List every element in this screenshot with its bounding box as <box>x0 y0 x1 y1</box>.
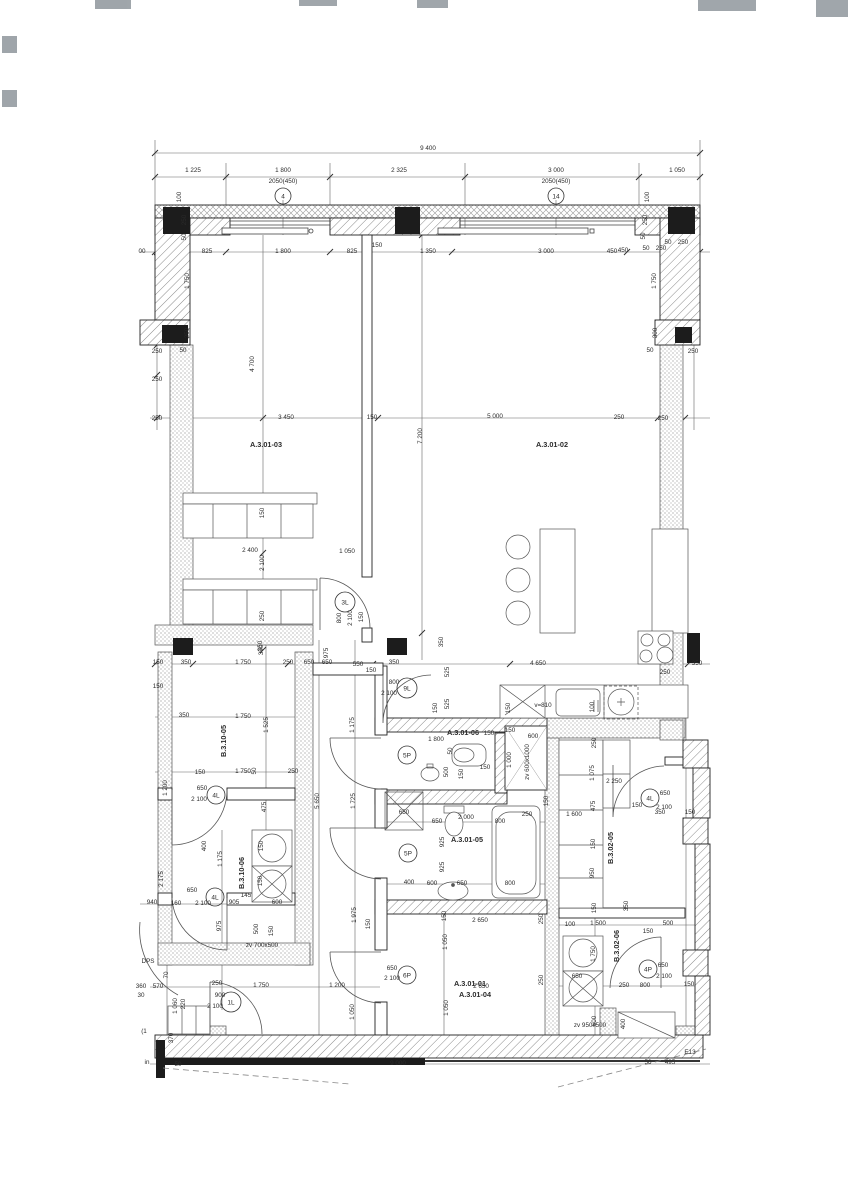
dim-label: 150 <box>358 611 365 622</box>
dim-label: 2 100 <box>656 973 672 980</box>
dim-label: 150 <box>372 242 383 249</box>
dim-label: 500 <box>253 923 260 934</box>
door-tag: 9L <box>403 685 411 692</box>
dim-label: 100 <box>644 191 651 202</box>
dim-label: 925 <box>439 836 446 847</box>
dim-label: 145 <box>241 892 252 899</box>
shaft-label: zv 600x1000 <box>524 744 531 780</box>
dim-label: 1 175 <box>217 851 224 867</box>
dim-label: 360 <box>136 983 147 990</box>
dim-label: 250 <box>538 913 545 924</box>
window-tag: 4 <box>281 193 285 200</box>
dim-label: 650 <box>399 809 410 816</box>
dim-label: 1 750 <box>235 768 251 775</box>
dim-label: 3 450 <box>278 414 294 421</box>
dim-label: 5 000 <box>487 413 503 420</box>
dim-label: 150 <box>432 702 439 713</box>
dim-label: 3 000 <box>538 248 554 255</box>
dim-label: 825 <box>202 248 213 255</box>
dim-label: 4 650 <box>530 660 546 667</box>
dim-label: 220 <box>180 998 187 1009</box>
dim-label: 150 <box>268 925 275 936</box>
dim-label: 350 <box>257 640 264 651</box>
dim-label: 250 <box>538 974 545 985</box>
dim-label: 650 <box>197 785 208 792</box>
dim-label: 50 <box>644 1059 652 1066</box>
dim-label: 00 <box>138 248 146 255</box>
dim-label: 250 <box>152 415 163 422</box>
dim-label: 570 <box>153 983 164 990</box>
dim-label: 250 <box>591 737 598 748</box>
dim-label: 1 060 <box>172 998 179 1014</box>
dim-label: 800 <box>336 612 343 623</box>
dim-label: 400 <box>201 840 208 851</box>
dim-label: 800 <box>505 880 516 887</box>
dim-label: 250 <box>642 214 649 225</box>
dim-label: 1 600 <box>566 811 582 818</box>
dim-label: 4 700 <box>249 356 256 372</box>
chair <box>506 568 530 592</box>
dim-label: 400 <box>404 879 415 886</box>
door-tag: 4L <box>211 894 219 901</box>
dim-label: 250 <box>212 980 223 987</box>
dim-label: 150 <box>505 702 512 713</box>
dim-label: 495 <box>665 1059 676 1066</box>
dim-label: 250 <box>614 414 625 421</box>
dim-label: 100 <box>589 701 596 712</box>
wardrobe <box>183 504 313 538</box>
door-tag: 4P <box>644 966 652 973</box>
dim-label: 2 400 <box>242 547 258 554</box>
dim-label: 150 <box>366 667 377 674</box>
room-label: A.3.01-05 <box>451 835 483 844</box>
wash-basin <box>421 767 439 781</box>
dim-label: 1 500 <box>590 920 606 927</box>
window-tag: 14 <box>552 193 560 200</box>
dim-label: 2 175 <box>158 871 165 887</box>
dim-label: 50 <box>664 239 672 246</box>
dim-label: 1 050 <box>669 167 685 174</box>
dim-label: 1 050 <box>443 1000 450 1016</box>
dim-label: 1 225 <box>185 167 201 174</box>
room-label: B.3.10-06 <box>237 857 246 889</box>
dim-label: 250 <box>658 415 669 422</box>
dim-label: 350 <box>655 809 666 816</box>
column <box>675 327 692 343</box>
shaft-label: zv 700x500 <box>246 942 279 949</box>
dim-label: 250 <box>283 659 294 666</box>
dim-label: 250 <box>522 811 533 818</box>
door-6P <box>330 952 381 1003</box>
dim-label: 70 <box>163 971 170 979</box>
dim-label: 150 <box>257 875 264 886</box>
dim-label: 50 <box>447 747 454 755</box>
dim-label: 1 750 <box>590 946 597 962</box>
wardrobe-shelf <box>183 493 317 504</box>
dim-label: 1 800 <box>275 248 291 255</box>
dim-label: 150 <box>484 730 495 737</box>
dim-label: 650 <box>457 880 468 887</box>
dim-label: 900 <box>215 992 226 999</box>
door-5P <box>330 828 381 879</box>
dim-label: 150 <box>259 507 266 518</box>
dim-label: 550 <box>353 661 364 668</box>
dim-label: 475 <box>261 801 268 812</box>
dim-label: 600 <box>272 899 283 906</box>
dim-label: 160 <box>171 900 182 907</box>
dim-label: 250 <box>660 669 671 676</box>
dim-label: 2050(450) <box>542 178 571 185</box>
room-label: A.3.01-03 <box>250 440 282 449</box>
chair <box>506 535 530 559</box>
dim-label: 3 000 <box>548 167 564 174</box>
floor-plan-page: architectural floor plan <box>0 0 848 1200</box>
door-tag: 4L <box>212 792 220 799</box>
dim-label: 250 <box>152 376 163 383</box>
room-label: A.3.01-06 <box>447 728 479 737</box>
dim-label: 1 750 <box>253 982 269 989</box>
dim-label: 150 <box>153 683 164 690</box>
dim-label: 150 <box>480 764 491 771</box>
dim-label: 150 <box>590 838 597 849</box>
dim-label: 5 650 <box>314 793 321 809</box>
dim-label: 150 <box>543 795 550 806</box>
closet <box>559 740 603 908</box>
dim-label: 2 325 <box>391 167 407 174</box>
door-5P <box>330 738 381 789</box>
dim-label: 150 <box>441 910 448 921</box>
dim-label: (1 <box>141 1028 147 1035</box>
plinth-band <box>163 1058 425 1065</box>
dim-label: 650 <box>658 962 669 969</box>
dim-label: 1 800 <box>275 167 291 174</box>
toilet <box>452 744 486 766</box>
dim-label: 100 <box>565 921 576 928</box>
door-tag: 3L <box>341 599 349 606</box>
dim-label: 650 <box>322 659 333 666</box>
dim-label: DPS <box>142 958 155 965</box>
window-1 <box>230 221 330 225</box>
dim-label: 150 <box>684 981 695 988</box>
dim-label: 1 975 <box>351 907 358 923</box>
dim-label: 650 <box>432 818 443 825</box>
dim-label: 650 <box>572 973 583 980</box>
dim-label: 350 <box>438 636 445 647</box>
dim-label: 800 <box>640 982 651 989</box>
dim-label: 150 <box>458 768 465 779</box>
dim-label: 350 <box>692 660 703 667</box>
shaft-label: v=810 <box>534 702 552 709</box>
room-label: B.3.02-05 <box>606 832 615 864</box>
dim-label: 50 <box>642 245 650 252</box>
dim-label: in <box>145 1059 150 1066</box>
dim-label: 7 200 <box>417 428 424 444</box>
column <box>387 638 407 655</box>
dim-label: 1 750 <box>235 713 251 720</box>
room-label: A.3.01-02 <box>536 440 568 449</box>
dim-label: 150 <box>258 840 265 851</box>
dim-label: 250 <box>184 327 191 338</box>
dim-label: 2 100 <box>347 610 354 626</box>
window-2 <box>460 221 635 225</box>
dim-label: 150 <box>685 809 696 816</box>
kitchen-tall-unit <box>652 529 688 633</box>
dim-label: 250 <box>619 982 630 989</box>
dim-label: 500 <box>443 766 450 777</box>
dim-label: 150 <box>367 414 378 421</box>
dim-label: 250 <box>181 214 188 225</box>
dim-label: 1 800 <box>428 736 444 743</box>
dim-label: 2 100 <box>191 796 207 803</box>
room-label: B.3.10-05 <box>219 725 228 757</box>
dim-label: 1 050 <box>349 1004 356 1020</box>
room-label: B.3.02-06 <box>612 930 621 962</box>
dim-label: 1 050 <box>442 934 449 950</box>
chair <box>506 601 530 625</box>
dim-label: 450 <box>618 247 629 254</box>
dim-label: 975 <box>216 920 223 931</box>
dim-label: 1 525 <box>263 717 270 733</box>
dim-label: 150 <box>632 802 643 809</box>
floor-plan-canvas: 9 4001 2251 8002050(450)2 3253 0002050(4… <box>0 0 848 1200</box>
dim-label: 940 <box>147 899 158 906</box>
dim-label: 350 <box>179 712 190 719</box>
dim-label: 1 075 <box>589 765 596 781</box>
dim-label: 2 650 <box>472 917 488 924</box>
dim-label: 1 350 <box>420 248 436 255</box>
column <box>687 633 700 663</box>
door-tag: 1L <box>227 999 235 1006</box>
dim-label: 1 750 <box>651 273 658 289</box>
dim-label: 2050(450) <box>269 178 298 185</box>
dim-label: 1 050 <box>339 548 355 555</box>
dim-label: 1 000 <box>506 752 513 768</box>
dim-label: 2 100 <box>259 555 266 571</box>
dim-label: 50 <box>646 347 654 354</box>
room-label: A.3.01-04 <box>459 990 492 999</box>
dim-label: 250 <box>678 239 689 246</box>
door-tag: 6P <box>403 972 411 979</box>
dim-label: 50 <box>174 1061 182 1068</box>
dim-label: 450 <box>607 248 618 255</box>
dim-label: 9 400 <box>420 145 436 152</box>
dim-label: 150 <box>505 727 516 734</box>
dim-label: 50 <box>640 232 647 240</box>
dim-label: 925 <box>439 861 446 872</box>
dim-label: 650 <box>187 887 198 894</box>
dim-label: 370 <box>168 1032 175 1043</box>
dim-label: 600 <box>427 880 438 887</box>
dim-label: 9 000 <box>390 1060 406 1067</box>
dim-label: 150 <box>643 928 654 935</box>
dim-label: 250 <box>259 610 266 621</box>
dim-label: 150 <box>365 918 372 929</box>
room-label: A.3.01-01 <box>454 979 486 988</box>
dim-label: 1 200 <box>329 982 345 989</box>
dim-label: 150 <box>153 659 164 666</box>
dim-label: 825 <box>347 248 358 255</box>
dim-label: E13 <box>684 1049 696 1056</box>
dim-label: 150 <box>591 902 598 913</box>
column <box>173 638 193 655</box>
dim-label: 150 <box>195 769 206 776</box>
dim-label: 250 <box>688 348 699 355</box>
dim-label: 800 <box>495 818 506 825</box>
dim-label: 100 <box>176 191 183 202</box>
wardrobe <box>183 590 313 624</box>
dim-label: 350 <box>181 659 192 666</box>
dim-label: 525 <box>444 698 451 709</box>
dim-label: 350 <box>623 900 630 911</box>
dim-label: 2 100 <box>381 690 397 697</box>
dim-label: 50 <box>181 233 188 241</box>
dim-label: 2 250 <box>606 778 622 785</box>
door-tag: 5P <box>404 850 412 857</box>
dim-label: 600 <box>528 733 539 740</box>
door-tag: 5P <box>403 752 411 759</box>
dim-label: 1 725 <box>350 793 357 809</box>
dim-label: 400 <box>620 1018 627 1029</box>
dim-label: 250 <box>152 348 163 355</box>
dim-label: 525 <box>444 666 451 677</box>
column <box>395 207 420 234</box>
dim-label: 800 <box>389 679 400 686</box>
dim-label: 905 <box>229 899 240 906</box>
dim-label: 30 <box>137 992 145 999</box>
dim-label: 500 <box>663 920 674 927</box>
scan-artifacts <box>2 0 848 107</box>
dim-label: 650 <box>387 965 398 972</box>
dim-label: 1 175 <box>349 717 356 733</box>
dim-label: 1 750 <box>235 659 251 666</box>
dim-label: 50 <box>251 767 258 775</box>
dim-label: 300 <box>652 327 659 338</box>
dim-label: 650 <box>304 659 315 666</box>
bar-table <box>540 529 575 633</box>
dim-label: 1 200 <box>162 780 169 796</box>
shaft-label: zv 950x500 <box>574 1022 607 1029</box>
dim-label: 950 <box>589 867 596 878</box>
dim-label: 250 <box>656 245 667 252</box>
dim-label: 350 <box>389 659 400 666</box>
dim-label: 975 <box>323 647 330 658</box>
dim-label: 475 <box>590 800 597 811</box>
dim-label: 50 <box>179 347 187 354</box>
column <box>668 207 695 234</box>
dim-label: 650 <box>660 790 671 797</box>
dim-label: 2 000 <box>458 814 474 821</box>
door-tag: 4L <box>646 795 654 802</box>
wardrobe-shelf <box>183 579 317 590</box>
dim-label: 1 750 <box>184 273 191 289</box>
dim-label: 250 <box>288 768 299 775</box>
